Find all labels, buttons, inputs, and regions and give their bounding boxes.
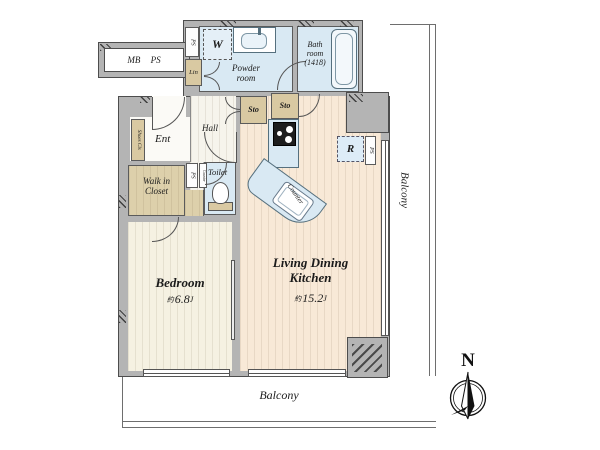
wall-hatch [340, 21, 354, 27]
storage-1-label: Sto [248, 105, 259, 114]
storage-2: Sto [271, 93, 299, 119]
bedroom-area-value: 6.8 [175, 293, 190, 307]
window-ldk-east [381, 140, 389, 336]
window-ldk-south [248, 369, 346, 377]
washer-space: W [203, 29, 232, 60]
window-bedroom-south [143, 369, 230, 377]
vanity-sink [233, 27, 276, 53]
bathtub [331, 29, 357, 89]
bedroom-area: 約 6.8 J [128, 293, 232, 307]
pipe-space-mid-label: PS [189, 172, 196, 179]
wall-hatch [298, 21, 314, 27]
stove [273, 122, 296, 146]
walk-in-closet-floor-ext [185, 190, 204, 216]
powder-room-label: Powder room [214, 63, 278, 84]
pipe-space-right-label: PS [367, 147, 374, 154]
shoes-closet: Shoes Cls [131, 119, 145, 161]
column-top-right-hatch [349, 94, 363, 102]
bedroom-label: Bedroom [128, 276, 232, 291]
hall-label: Hall [202, 123, 218, 133]
balcony-bottom-label: Balcony [122, 389, 436, 403]
vanity-faucet [258, 28, 261, 35]
compass-n-label: N [461, 350, 475, 371]
linen-label: Lin [189, 69, 198, 76]
ldk-area-unit: J [323, 294, 327, 303]
compass-needle-west [462, 372, 469, 419]
compass-needle-east [468, 372, 475, 419]
stove-burner-3 [285, 136, 292, 143]
entrance-door-leaf [152, 97, 153, 130]
ldk-label: Living Dining Kitchen [240, 256, 381, 286]
mb-ps-label: MB PS [127, 55, 160, 65]
bathtub-inner [335, 33, 353, 85]
balcony-right-label: Balcony [398, 172, 411, 208]
balcony-bottom-rail-line [122, 421, 436, 422]
wall-hatch [119, 195, 126, 208]
pipe-space-right: PS [365, 136, 376, 165]
storage-2-label: Sto [280, 101, 291, 110]
ldk-area-approx: 約 [294, 295, 301, 303]
toilet-bowl [212, 182, 229, 204]
wall-hatch [119, 310, 126, 323]
bedroom-area-unit: J [190, 295, 194, 304]
column-bottom-right-hatch [352, 344, 382, 372]
pipe-space-mid: PS [186, 163, 198, 188]
toilet-label: Toilet [208, 168, 227, 178]
bath-room-label: Bath room (1418) [297, 40, 333, 68]
wall-hatch [220, 21, 236, 27]
north-compass: N [442, 348, 494, 432]
pipe-space-top: PS [185, 27, 199, 57]
vanity-basin [241, 33, 267, 49]
washer-label: W [212, 38, 223, 52]
ldk-door-leaf [236, 132, 237, 163]
shoes-closet-label: Shoes Cls [135, 130, 141, 150]
linen-cabinet: Lin [185, 59, 202, 86]
mb-ps-box: MB PS [104, 48, 184, 72]
ldk-area-value: 15.2 [302, 292, 323, 306]
ldk-area: 約 15.2 J [240, 292, 381, 306]
floor-plan: PS Lin W Sto Sto Shoes Cls PS Counter R … [0, 0, 600, 450]
walk-in-closet-label: Walk in Closet [128, 176, 185, 197]
storage-1: Sto [240, 96, 267, 124]
bedroom-area-approx: 約 [167, 296, 174, 304]
entrance-label: Ent [155, 133, 170, 146]
balcony-right-rail-line [429, 24, 430, 422]
refrigerator-label: R [347, 143, 354, 156]
wall-hatch [140, 97, 150, 103]
pipe-space-top-label: PS [189, 39, 196, 46]
refrigerator-space: R [337, 136, 364, 162]
stove-burner-1 [286, 126, 293, 133]
stove-burner-2 [277, 131, 282, 136]
